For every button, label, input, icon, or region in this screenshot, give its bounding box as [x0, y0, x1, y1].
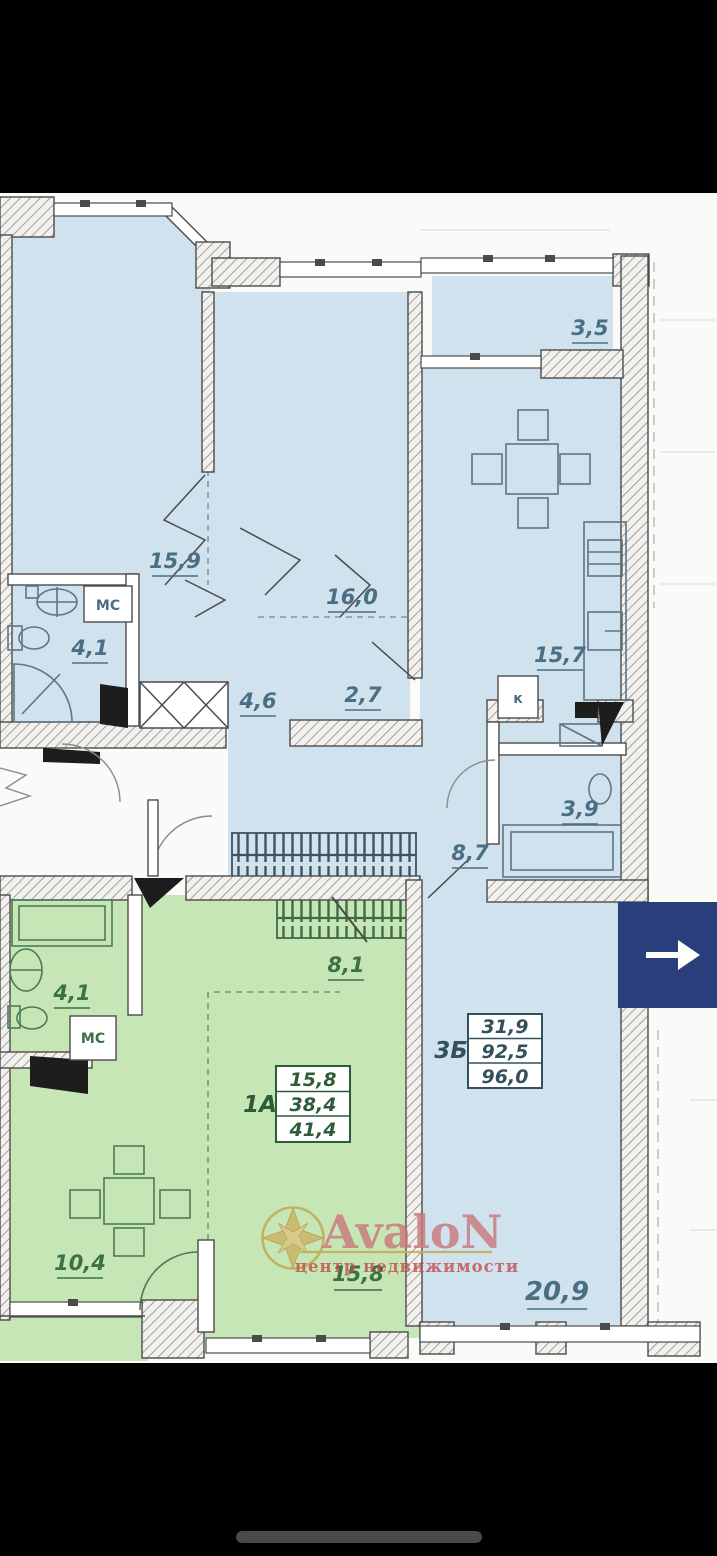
area-label-balcony: 3,5 [571, 316, 608, 340]
area-label-living: 20,9 [525, 1277, 589, 1307]
area-label-corridor1: 4,6 [238, 689, 276, 713]
wardrobe [140, 682, 228, 728]
storage-mark-1a: МС [81, 1031, 105, 1047]
area-label-bathroom: 4,1 [70, 636, 108, 660]
apartment-3b-id: 3Б [434, 1038, 468, 1064]
floor-plan-image: 15,9 16,0 3,5 15,7 4,1 4,6 2,7 8,7 3,9 2… [0, 0, 717, 1556]
kitchen-mark-3b: к [513, 691, 523, 707]
area-label-kitchen: 15,7 [534, 643, 586, 667]
home-indicator[interactable] [236, 1531, 482, 1543]
area-label-bathroom-1a: 4,1 [52, 981, 90, 1005]
marks-1a: МС [70, 1016, 116, 1060]
stat-3b-living: 31,9 [482, 1016, 529, 1038]
stat-1a-living: 15,8 [290, 1069, 337, 1091]
stat-3b-total: 96,0 [482, 1066, 529, 1088]
stat-3b-heated: 92,5 [482, 1041, 529, 1063]
phone-screenshot: 15,9 16,0 3,5 15,7 4,1 4,6 2,7 8,7 3,9 2… [0, 0, 717, 1556]
top-letterbox-bar [0, 0, 717, 193]
storage-mark-3b: МС [96, 598, 120, 614]
apartment-1a-id: 1А [243, 1092, 277, 1118]
next-image-button[interactable] [618, 902, 717, 1008]
area-label-kitchen-1a: 10,4 [54, 1251, 106, 1275]
hall-radiator-comb [232, 833, 416, 878]
loggia-radiator-comb [277, 898, 417, 938]
stat-1a-total: 41,4 [289, 1119, 337, 1141]
bottom-letterbox-bar [0, 1363, 717, 1556]
area-label-hall: 8,7 [451, 841, 489, 865]
area-label-bedroom2: 16,0 [326, 585, 378, 609]
area-label-corridor2: 2,7 [344, 683, 382, 707]
watermark-brand: AvaloN [321, 1205, 503, 1259]
area-label-bedroom1: 15,9 [149, 549, 201, 573]
watermark-tagline: центр недвижимости [295, 1257, 519, 1276]
stat-1a-heated: 38,4 [290, 1094, 337, 1116]
area-label-loggia-1a: 8,1 [327, 953, 364, 977]
area-label-wc: 3,9 [561, 797, 598, 821]
